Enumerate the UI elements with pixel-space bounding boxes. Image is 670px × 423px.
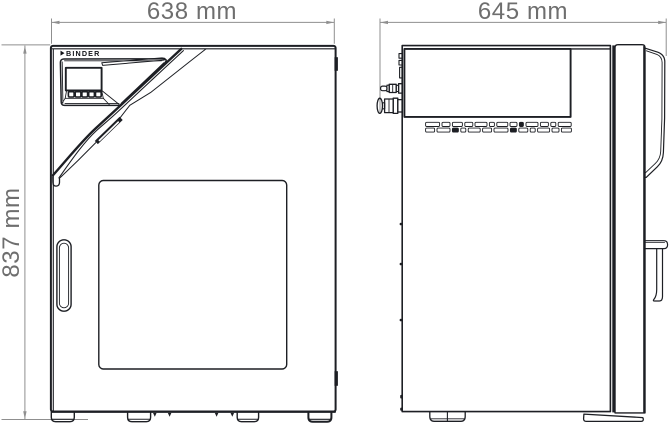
svg-text:645 mm: 645 mm (478, 0, 568, 25)
svg-text:837 mm: 837 mm (0, 187, 25, 277)
svg-text:BINDER: BINDER (66, 49, 100, 58)
svg-text:638 mm: 638 mm (147, 0, 237, 25)
